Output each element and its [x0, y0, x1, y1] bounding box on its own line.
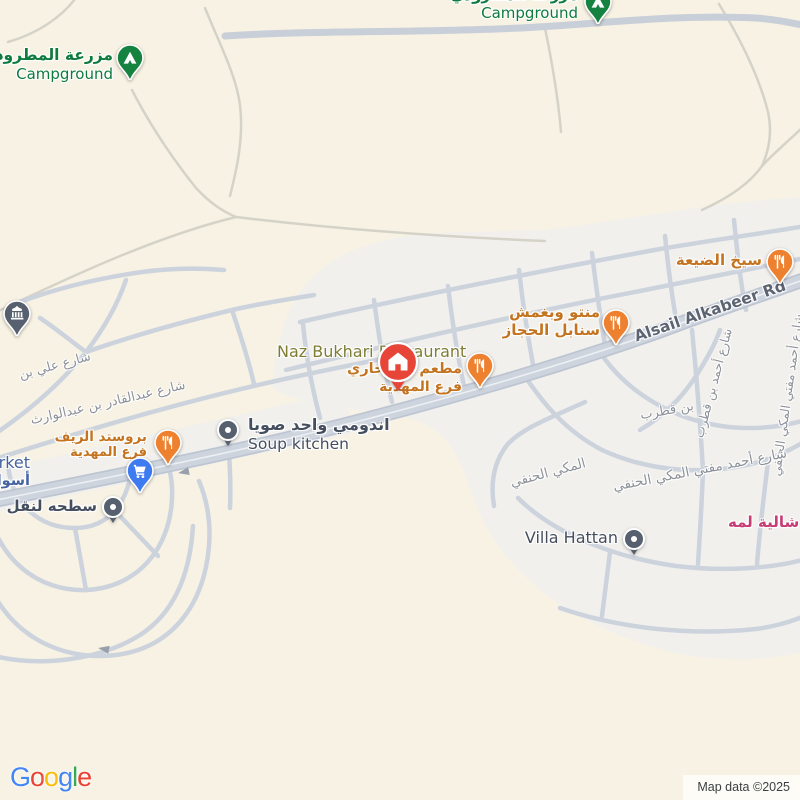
- broasted-alreef-pin[interactable]: [154, 429, 182, 466]
- soup-kitchen-pin[interactable]: [217, 419, 239, 441]
- building-poi-pin[interactable]: [3, 300, 31, 337]
- google-logo-letter: o: [30, 762, 44, 792]
- supermarket-pin[interactable]: [126, 457, 154, 494]
- google-logo-letter: g: [58, 762, 72, 792]
- campground-matroudi-pin[interactable]: [116, 44, 144, 81]
- poi-pins-layer: [0, 0, 800, 800]
- google-logo[interactable]: Google: [10, 762, 91, 793]
- place-dot-icon: [623, 528, 645, 550]
- restaurant-icon: [602, 309, 630, 346]
- campground-north-pin[interactable]: [584, 0, 612, 25]
- building-icon: [3, 300, 31, 337]
- manto-wabaghmash-sanabil-alhijaz-pin[interactable]: [602, 309, 630, 346]
- campground-icon: [116, 44, 144, 81]
- satha-transport-pin[interactable]: [102, 496, 124, 518]
- google-logo-letter: o: [44, 762, 58, 792]
- place-dot-icon: [217, 419, 239, 441]
- home-icon: [376, 341, 420, 393]
- map-attribution: Map data ©2025: [683, 775, 800, 800]
- naz-bukhari-restaurant-pin[interactable]: [376, 341, 420, 393]
- google-logo-letter: G: [10, 762, 30, 792]
- matam-naz-bukhari-pin[interactable]: [466, 352, 494, 389]
- google-logo-letter: e: [77, 762, 91, 792]
- map-data-text: Map data ©2025: [697, 780, 790, 794]
- place-dot-icon: [102, 496, 124, 518]
- map-canvas[interactable]: شارع علي بنشارع عبدالقادر بن عبدالوارثAl…: [0, 0, 800, 800]
- cart-icon: [126, 457, 154, 494]
- restaurant-icon: [154, 429, 182, 466]
- villa-hattan-pin[interactable]: [623, 528, 645, 550]
- restaurant-icon: [766, 248, 794, 285]
- restaurant-icon: [466, 352, 494, 389]
- seekh-aldayaa-pin[interactable]: [766, 248, 794, 285]
- campground-icon: [584, 0, 612, 25]
